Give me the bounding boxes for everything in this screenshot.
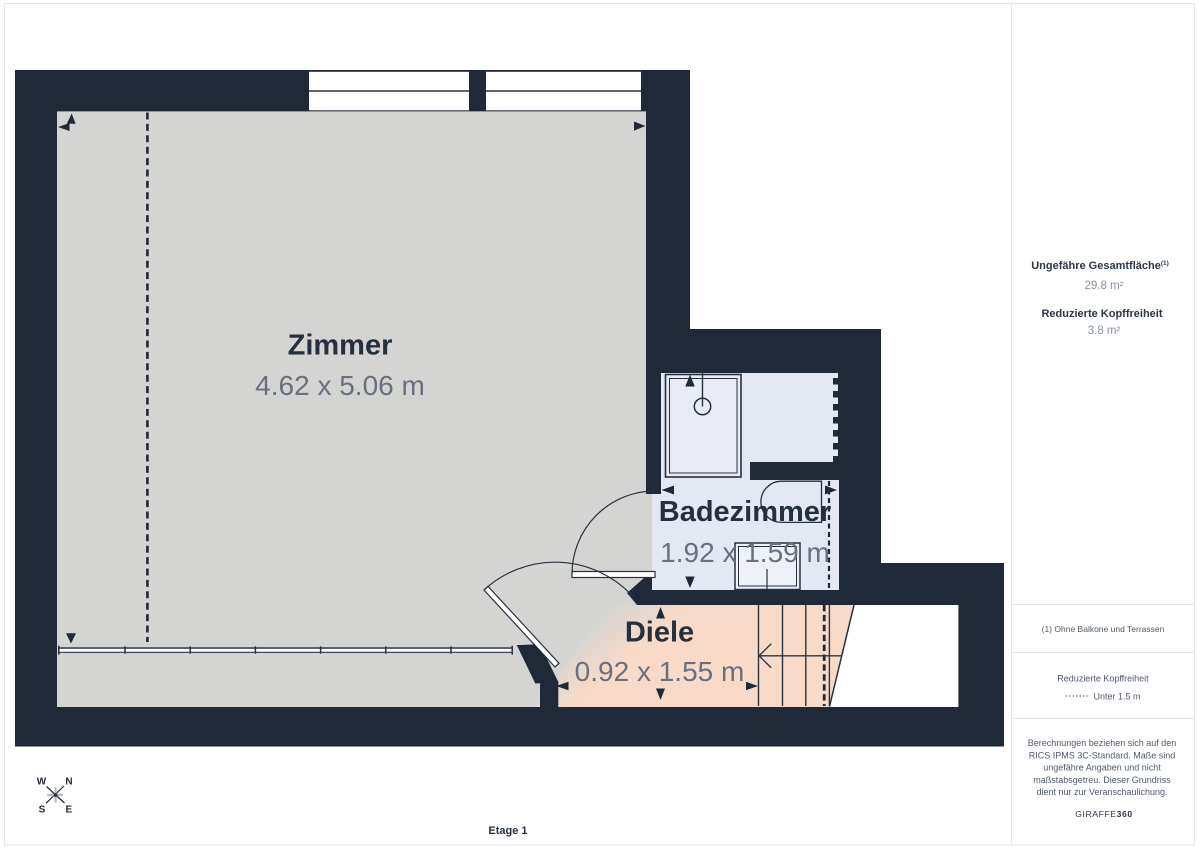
svg-text:Unter 1.5 m: Unter 1.5 m [1093, 692, 1140, 702]
svg-text:Etage 1: Etage 1 [488, 825, 527, 837]
svg-text:Reduzierte Kopffreiheit: Reduzierte Kopffreiheit [1041, 308, 1162, 320]
svg-text:Berechnungen beziehen sich auf: Berechnungen beziehen sich auf den [1028, 738, 1177, 748]
svg-text:4.62 x 5.06 m: 4.62 x 5.06 m [255, 370, 425, 401]
svg-text:GIRAFFE360: GIRAFFE360 [1075, 809, 1133, 819]
svg-text:Diele: Diele [625, 617, 694, 649]
svg-text:E: E [65, 805, 72, 816]
svg-text:dient nur zur Veranschaulichun: dient nur zur Veranschaulichung. [1036, 787, 1167, 797]
svg-text:0.92 x 1.55 m: 0.92 x 1.55 m [575, 656, 745, 687]
svg-text:N: N [65, 777, 72, 788]
svg-text:29.8 m²: 29.8 m² [1085, 280, 1124, 292]
svg-text:(1) Ohne Balkone und Terrassen: (1) Ohne Balkone und Terrassen [1042, 624, 1165, 634]
svg-text:Badezimmer: Badezimmer [659, 496, 831, 528]
svg-text:3.8 m²: 3.8 m² [1088, 325, 1121, 337]
svg-text:Reduzierte Kopffreiheit: Reduzierte Kopffreiheit [1057, 674, 1149, 684]
svg-text:Zimmer: Zimmer [288, 330, 393, 362]
svg-text:maßstabsgetreu. Dieser Grundri: maßstabsgetreu. Dieser Grundriss [1033, 775, 1171, 785]
svg-text:S: S [39, 805, 46, 816]
svg-text:ungefähre Angaben und nicht: ungefähre Angaben und nicht [1043, 763, 1161, 773]
svg-text:W: W [37, 777, 47, 788]
svg-text:Ungefähre Gesamtfläche(1): Ungefähre Gesamtfläche(1) [1031, 260, 1169, 272]
svg-text:RICS IPMS 3C-Standard. Maße si: RICS IPMS 3C-Standard. Maße sind [1029, 750, 1176, 760]
svg-text:1.92 x 1.59 m: 1.92 x 1.59 m [660, 537, 830, 568]
